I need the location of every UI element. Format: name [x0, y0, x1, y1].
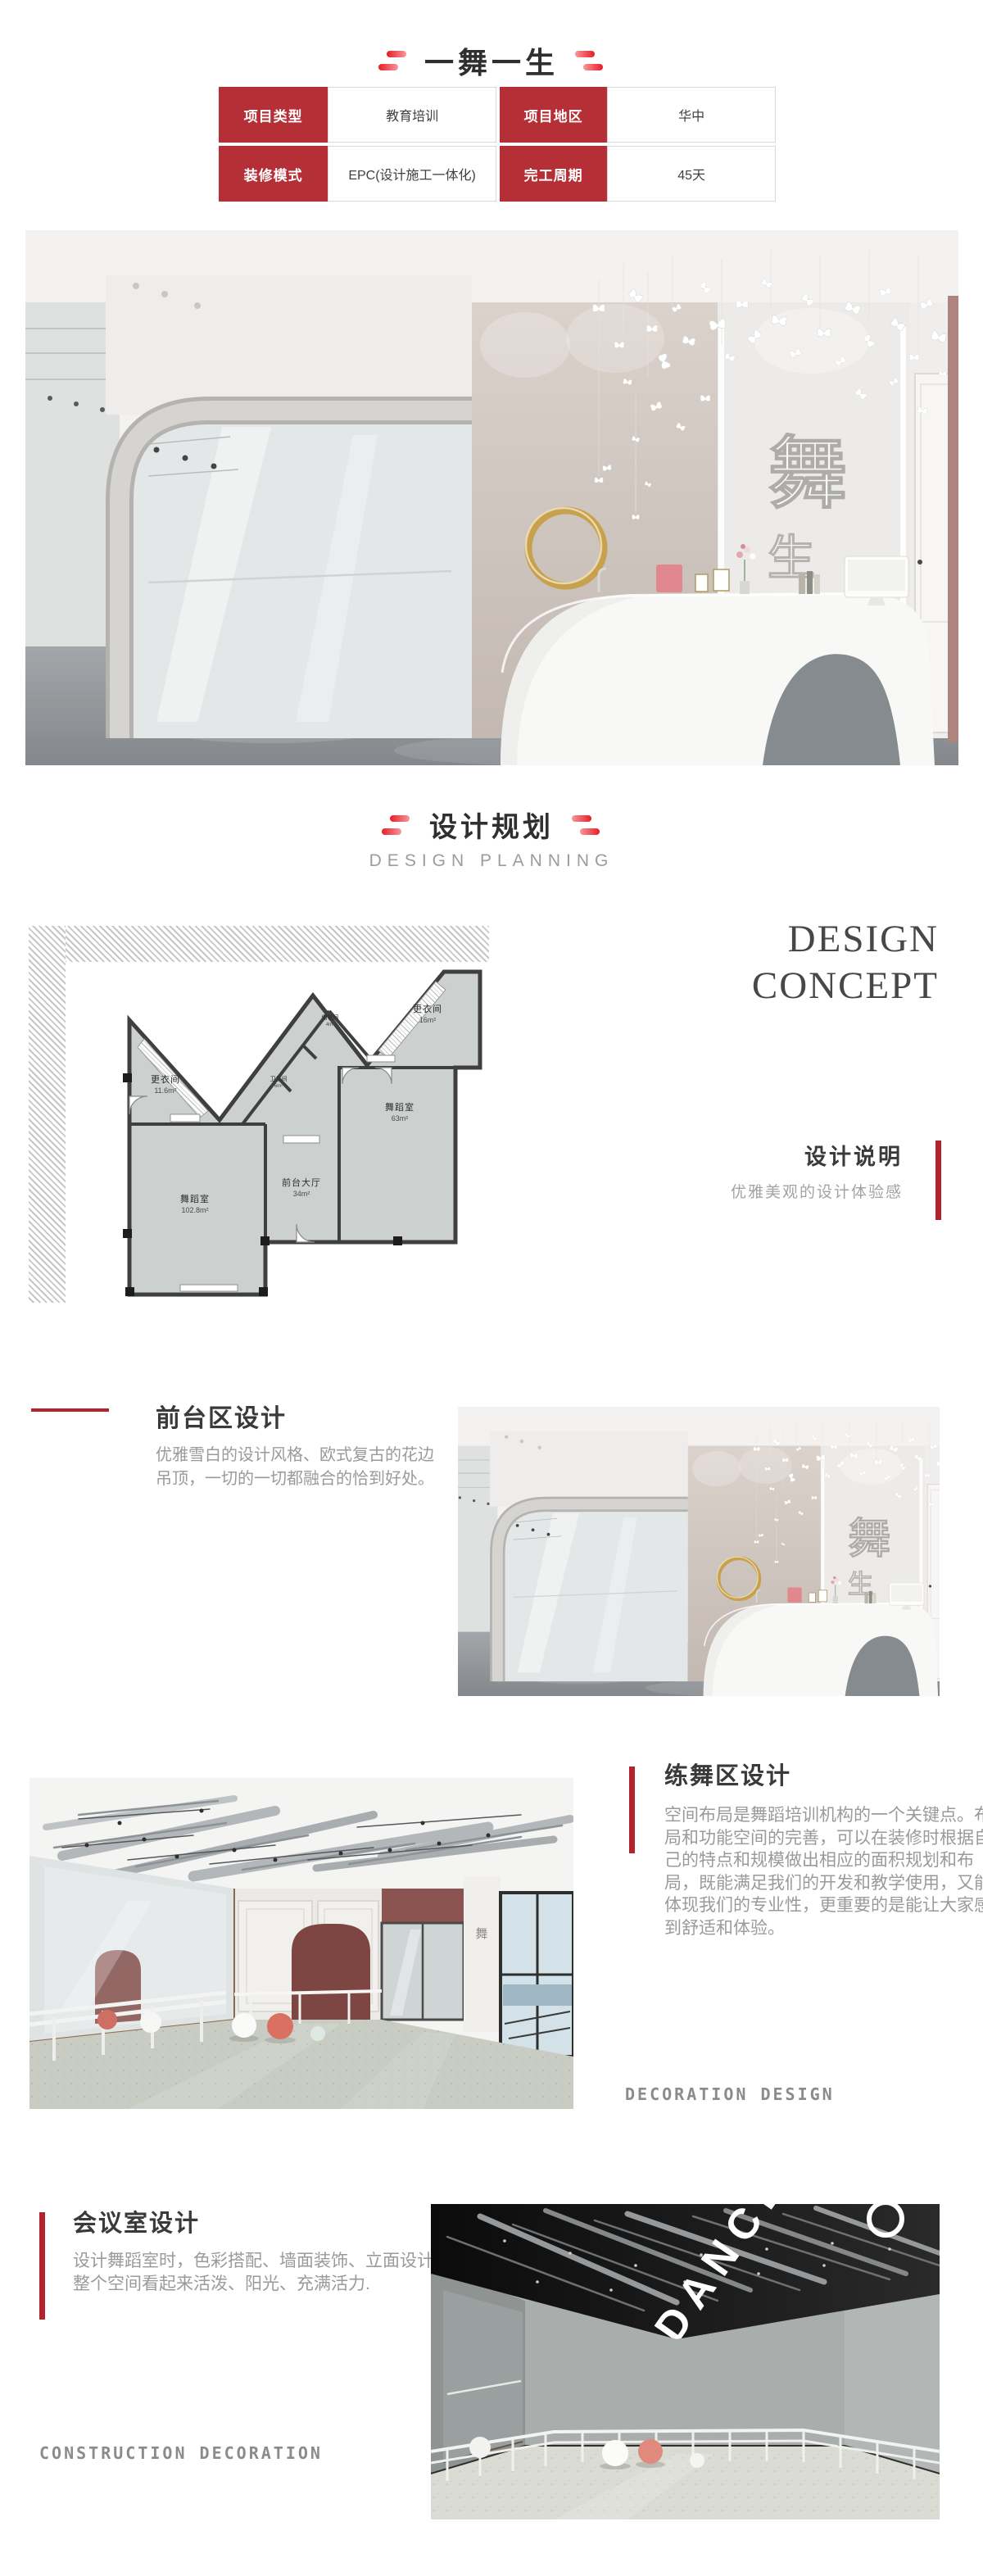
table-row: 装修模式 EPC(设计施工一体化) 完工周期 45天	[219, 146, 776, 202]
project-info-table: 项目类型 教育培训 项目地区 华中 装修模式 EPC(设计施工一体化) 完工周期…	[219, 87, 776, 202]
front-desk-image	[458, 1407, 940, 1696]
value-project-region: 华中	[607, 87, 776, 143]
design-description-text: 优雅美观的设计体验感	[731, 1180, 903, 1202]
table-row: 项目类型 教育培训 项目地区 华中	[219, 87, 776, 143]
value-decoration-mode: EPC(设计施工一体化)	[328, 146, 496, 202]
red-dash-icon	[382, 814, 411, 836]
practice-section-body: 空间布局是舞蹈培训机构的一个关键点。布局和功能空间的完善，可以在装修时根据自己的…	[664, 1804, 983, 1939]
room-label-dressing-right: 更衣间16m²	[395, 1005, 460, 1025]
section-header-planning: 设计规划 DESIGN PLANNING	[0, 805, 983, 871]
meeting-room-image: DANCE	[431, 2204, 940, 2519]
page-header: 一舞一生	[0, 39, 983, 82]
label-completion-period: 完工周期	[500, 146, 607, 202]
red-dash-icon	[575, 50, 605, 71]
label-project-region: 项目地区	[500, 87, 607, 143]
design-concept-heading: DESIGN CONCEPT	[752, 916, 939, 1009]
room-label-reception-hall: 前台大厅34m²	[269, 1178, 334, 1199]
meeting-section-body: 设计舞蹈室时，色彩搭配、墙面装饰、立面设计要让整个空间看起来活泼、阳光、充满活力…	[73, 2250, 478, 2296]
practice-room-image: 舞	[29, 1778, 573, 2109]
meeting-section-caption: CONSTRUCTION DECORATION	[39, 2443, 323, 2463]
value-project-type: 教育培训	[328, 87, 496, 143]
room-label-dance-right: 舞蹈室63m²	[367, 1103, 433, 1123]
front-desk-section-title: 前台区设计	[156, 1398, 287, 1434]
practice-section-title: 练舞区设计	[664, 1757, 791, 1791]
red-dash-icon	[378, 50, 408, 71]
red-accent-bar	[935, 1141, 941, 1220]
meeting-section-title: 会议室设计	[73, 2204, 200, 2238]
practice-section-caption: DECORATION DESIGN	[625, 2084, 835, 2104]
page: 一舞一生 项目类型 教育培训 项目地区 华中 装修模式 EPC(设计施工一体化)…	[0, 0, 983, 2576]
design-concept-line1: DESIGN	[752, 916, 939, 963]
value-completion-period: 45天	[607, 146, 776, 202]
wall-sign: 舞	[475, 1927, 487, 1941]
section-title: 设计规划	[429, 805, 554, 845]
label-decoration-mode: 装修模式	[219, 146, 328, 202]
room-label-bathroom: 卫生间6m²	[262, 1077, 295, 1090]
room-label-storage: 储物间4m²	[314, 1015, 347, 1028]
room-label-dressing-left: 更衣间11.6m²	[133, 1075, 198, 1095]
label-project-type: 项目类型	[219, 87, 328, 143]
hero-image	[25, 230, 958, 765]
red-dash-icon	[572, 814, 601, 836]
floor-plan: 更衣间11.6m² 舞蹈室102.8m² 前台大厅34m² 舞蹈室63m² 更衣…	[123, 918, 483, 1303]
room-label-dance-large: 舞蹈室102.8m²	[162, 1195, 228, 1215]
design-description-title: 设计说明	[804, 1139, 903, 1171]
front-desk-section-body: 优雅雪白的设计风格、欧式复古的花边吊顶，一切的一切都融合的恰到好处。	[156, 1444, 441, 1491]
design-concept-line2: CONCEPT	[752, 963, 939, 1009]
red-accent-bar	[39, 2212, 45, 2320]
red-accent-line	[31, 1408, 109, 1412]
hatch-decoration-vertical	[29, 926, 66, 1303]
design-description: 设计说明 优雅美观的设计体验感	[646, 1139, 941, 1221]
section-subtitle: DESIGN PLANNING	[369, 851, 614, 871]
red-accent-bar	[629, 1766, 635, 1853]
page-title: 一舞一生	[424, 39, 559, 82]
